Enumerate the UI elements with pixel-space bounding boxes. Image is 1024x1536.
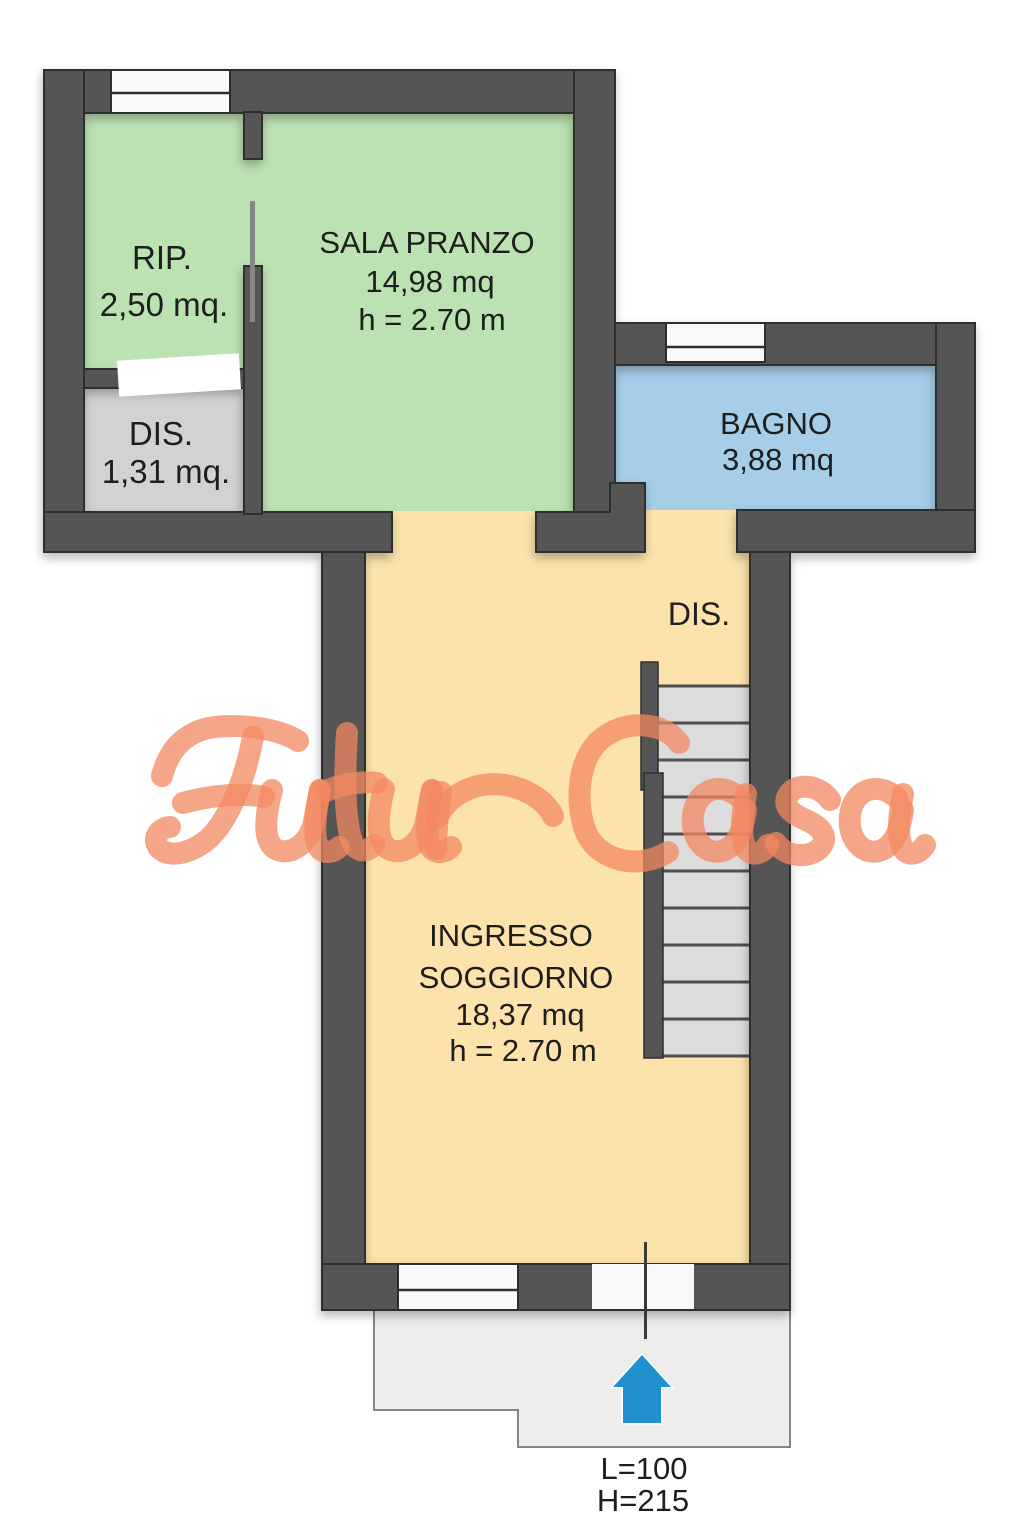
svg-text:h = 2.70 m: h = 2.70 m [358,302,505,337]
svg-text:2,50 mq.: 2,50 mq. [100,286,228,323]
svg-text:14,98 mq: 14,98 mq [365,264,494,299]
svg-text:INGRESSO: INGRESSO [429,918,593,953]
svg-text:3,88 mq: 3,88 mq [722,442,834,477]
svg-text:SOGGIORNO: SOGGIORNO [419,960,614,995]
svg-text:RIP.: RIP. [132,239,192,276]
svg-text:SALA PRANZO: SALA PRANZO [319,225,534,260]
svg-text:h = 2.70 m: h = 2.70 m [449,1033,596,1068]
svg-text:H=215: H=215 [597,1483,689,1518]
svg-text:DIS.: DIS. [129,415,193,452]
svg-text:L=100: L=100 [600,1451,687,1486]
svg-text:BAGNO: BAGNO [720,406,832,441]
svg-text:DIS.: DIS. [668,596,730,632]
svg-text:1,31 mq.: 1,31 mq. [102,453,230,490]
svg-text:18,37 mq: 18,37 mq [455,997,584,1032]
